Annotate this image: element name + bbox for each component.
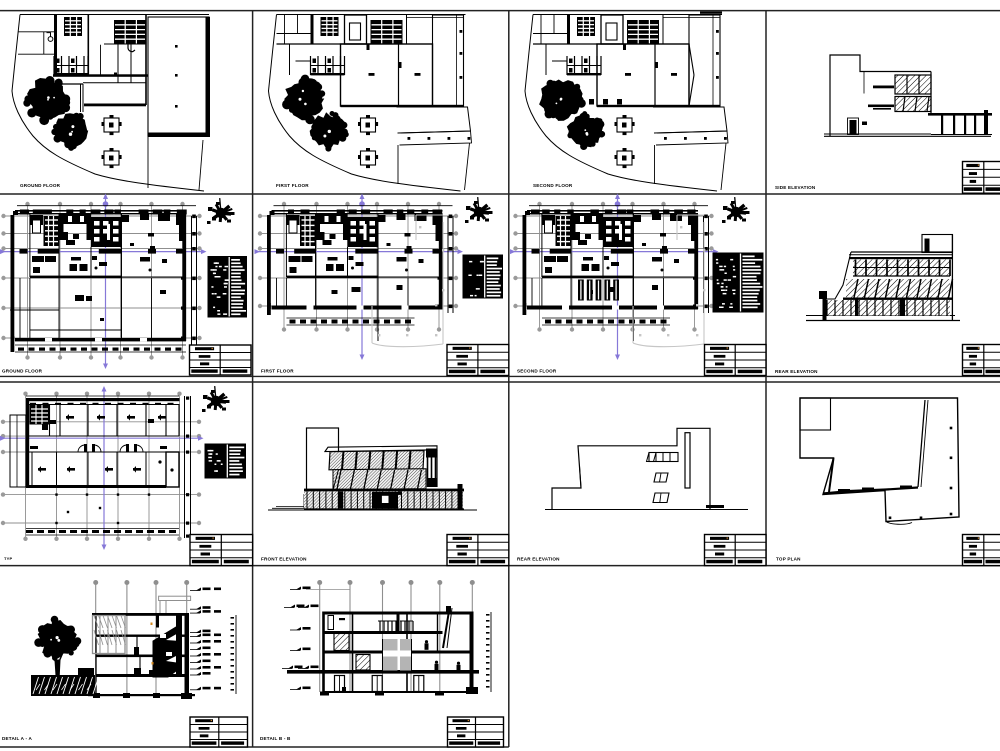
svg-text:FIRST FLOOR: FIRST FLOOR (261, 369, 294, 374)
svg-text:GROUND FLOOR: GROUND FLOOR (20, 183, 61, 188)
svg-text:SECOND FLOOR: SECOND FLOOR (533, 183, 573, 188)
svg-text:GROUND FLOOR: GROUND FLOOR (2, 369, 43, 374)
svg-text:SECOND FLOOR: SECOND FLOOR (517, 369, 557, 374)
svg-text:FRONT ELEVATION: FRONT ELEVATION (261, 557, 307, 562)
svg-text:DETAIL A - A: DETAIL A - A (2, 736, 33, 741)
svg-text:REAR ELEVATION: REAR ELEVATION (517, 557, 560, 562)
svg-text:TYP: TYP (4, 556, 13, 561)
svg-text:FIRST FLOOR: FIRST FLOOR (276, 183, 309, 188)
svg-text:SIDE ELEVATION: SIDE ELEVATION (775, 185, 816, 190)
svg-text:REAR ELEVATION: REAR ELEVATION (775, 369, 818, 374)
svg-text:DETAIL B - B: DETAIL B - B (260, 736, 291, 741)
svg-text:TOP PLAN: TOP PLAN (776, 557, 801, 562)
